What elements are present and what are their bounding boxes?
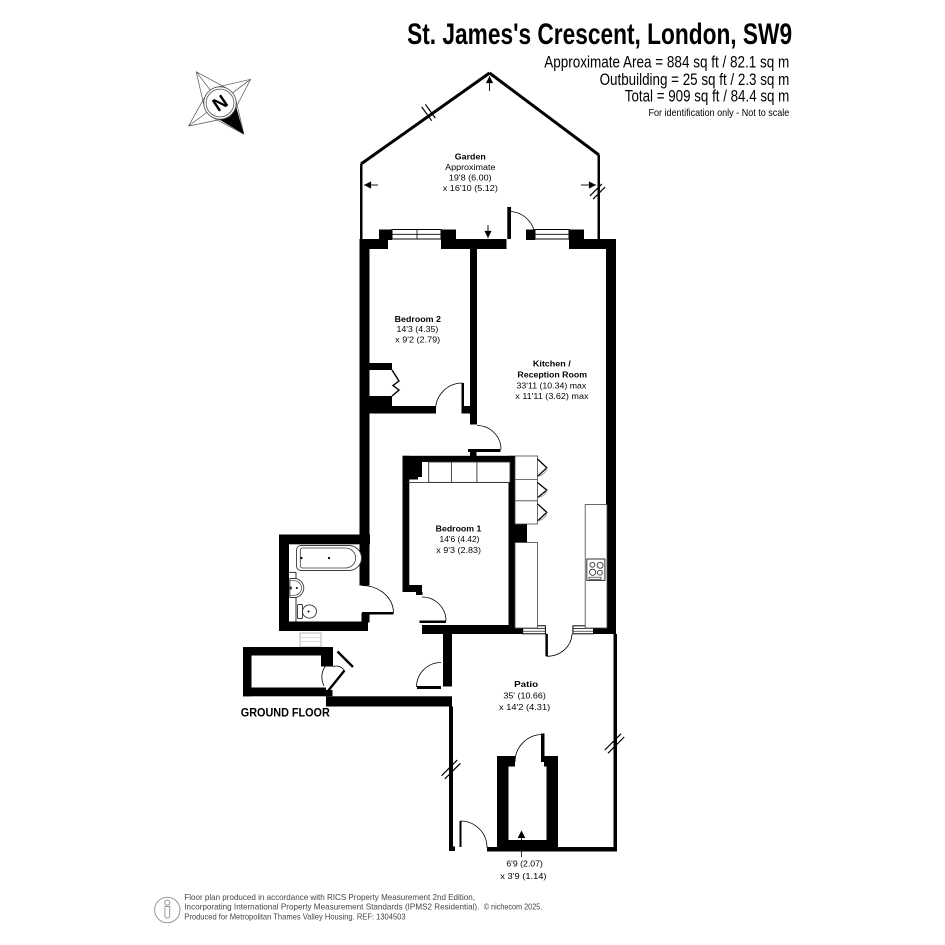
svg-text:Bedroom 1: Bedroom 1 — [436, 523, 482, 533]
svg-text:Kitchen /: Kitchen / — [533, 359, 572, 369]
svg-text:GROUND FLOOR: GROUND FLOOR — [241, 705, 330, 719]
svg-text:33'11 (10.34) max: 33'11 (10.34) max — [517, 380, 587, 390]
svg-text:x 14'2 (4.31): x 14'2 (4.31) — [499, 702, 550, 712]
svg-text:19'8 (6.00): 19'8 (6.00) — [449, 173, 492, 183]
svg-text:Reception Room: Reception Room — [517, 370, 587, 380]
svg-text:For identification only - Not: For identification only - Not to scale — [649, 108, 790, 119]
svg-text:Produced for Metropolitan Tham: Produced for Metropolitan Thames Valley … — [184, 911, 406, 921]
svg-text:St. James's Crescent, London,: St. James's Crescent, London, SW9 — [407, 18, 792, 51]
svg-text:Floor plan produced in accorda: Floor plan produced in accordance with R… — [184, 892, 475, 902]
svg-text:x 16'10 (5.12): x 16'10 (5.12) — [443, 183, 498, 193]
svg-text:Incorporating International Pr: Incorporating International Property Mea… — [184, 902, 479, 912]
svg-text:35' (10.66): 35' (10.66) — [503, 691, 546, 701]
svg-text:Patio: Patio — [514, 679, 538, 689]
svg-text:© nichecom 2025.: © nichecom 2025. — [484, 902, 543, 912]
svg-text:x 3'9 (1.14): x 3'9 (1.14) — [500, 871, 546, 881]
svg-text:x 11'11 (3.62) max: x 11'11 (3.62) max — [515, 391, 589, 401]
svg-text:Total = 909 sq ft / 84.4 sq m: Total = 909 sq ft / 84.4 sq m — [625, 86, 790, 105]
svg-text:Approximate Area = 884 sq ft /: Approximate Area = 884 sq ft / 82.1 sq m — [544, 52, 789, 71]
svg-text:Garden: Garden — [455, 152, 486, 162]
svg-text:Bedroom 2: Bedroom 2 — [395, 314, 442, 324]
svg-text:x 9'3 (2.83): x 9'3 (2.83) — [436, 545, 481, 555]
svg-text:14'3 (4.35): 14'3 (4.35) — [397, 324, 439, 334]
svg-text:Approximate: Approximate — [445, 162, 496, 172]
svg-text:x 9'2 (2.79): x 9'2 (2.79) — [395, 335, 440, 345]
svg-text:14'6 (4.42): 14'6 (4.42) — [440, 534, 480, 544]
svg-text:6'9 (2.07): 6'9 (2.07) — [506, 858, 543, 868]
